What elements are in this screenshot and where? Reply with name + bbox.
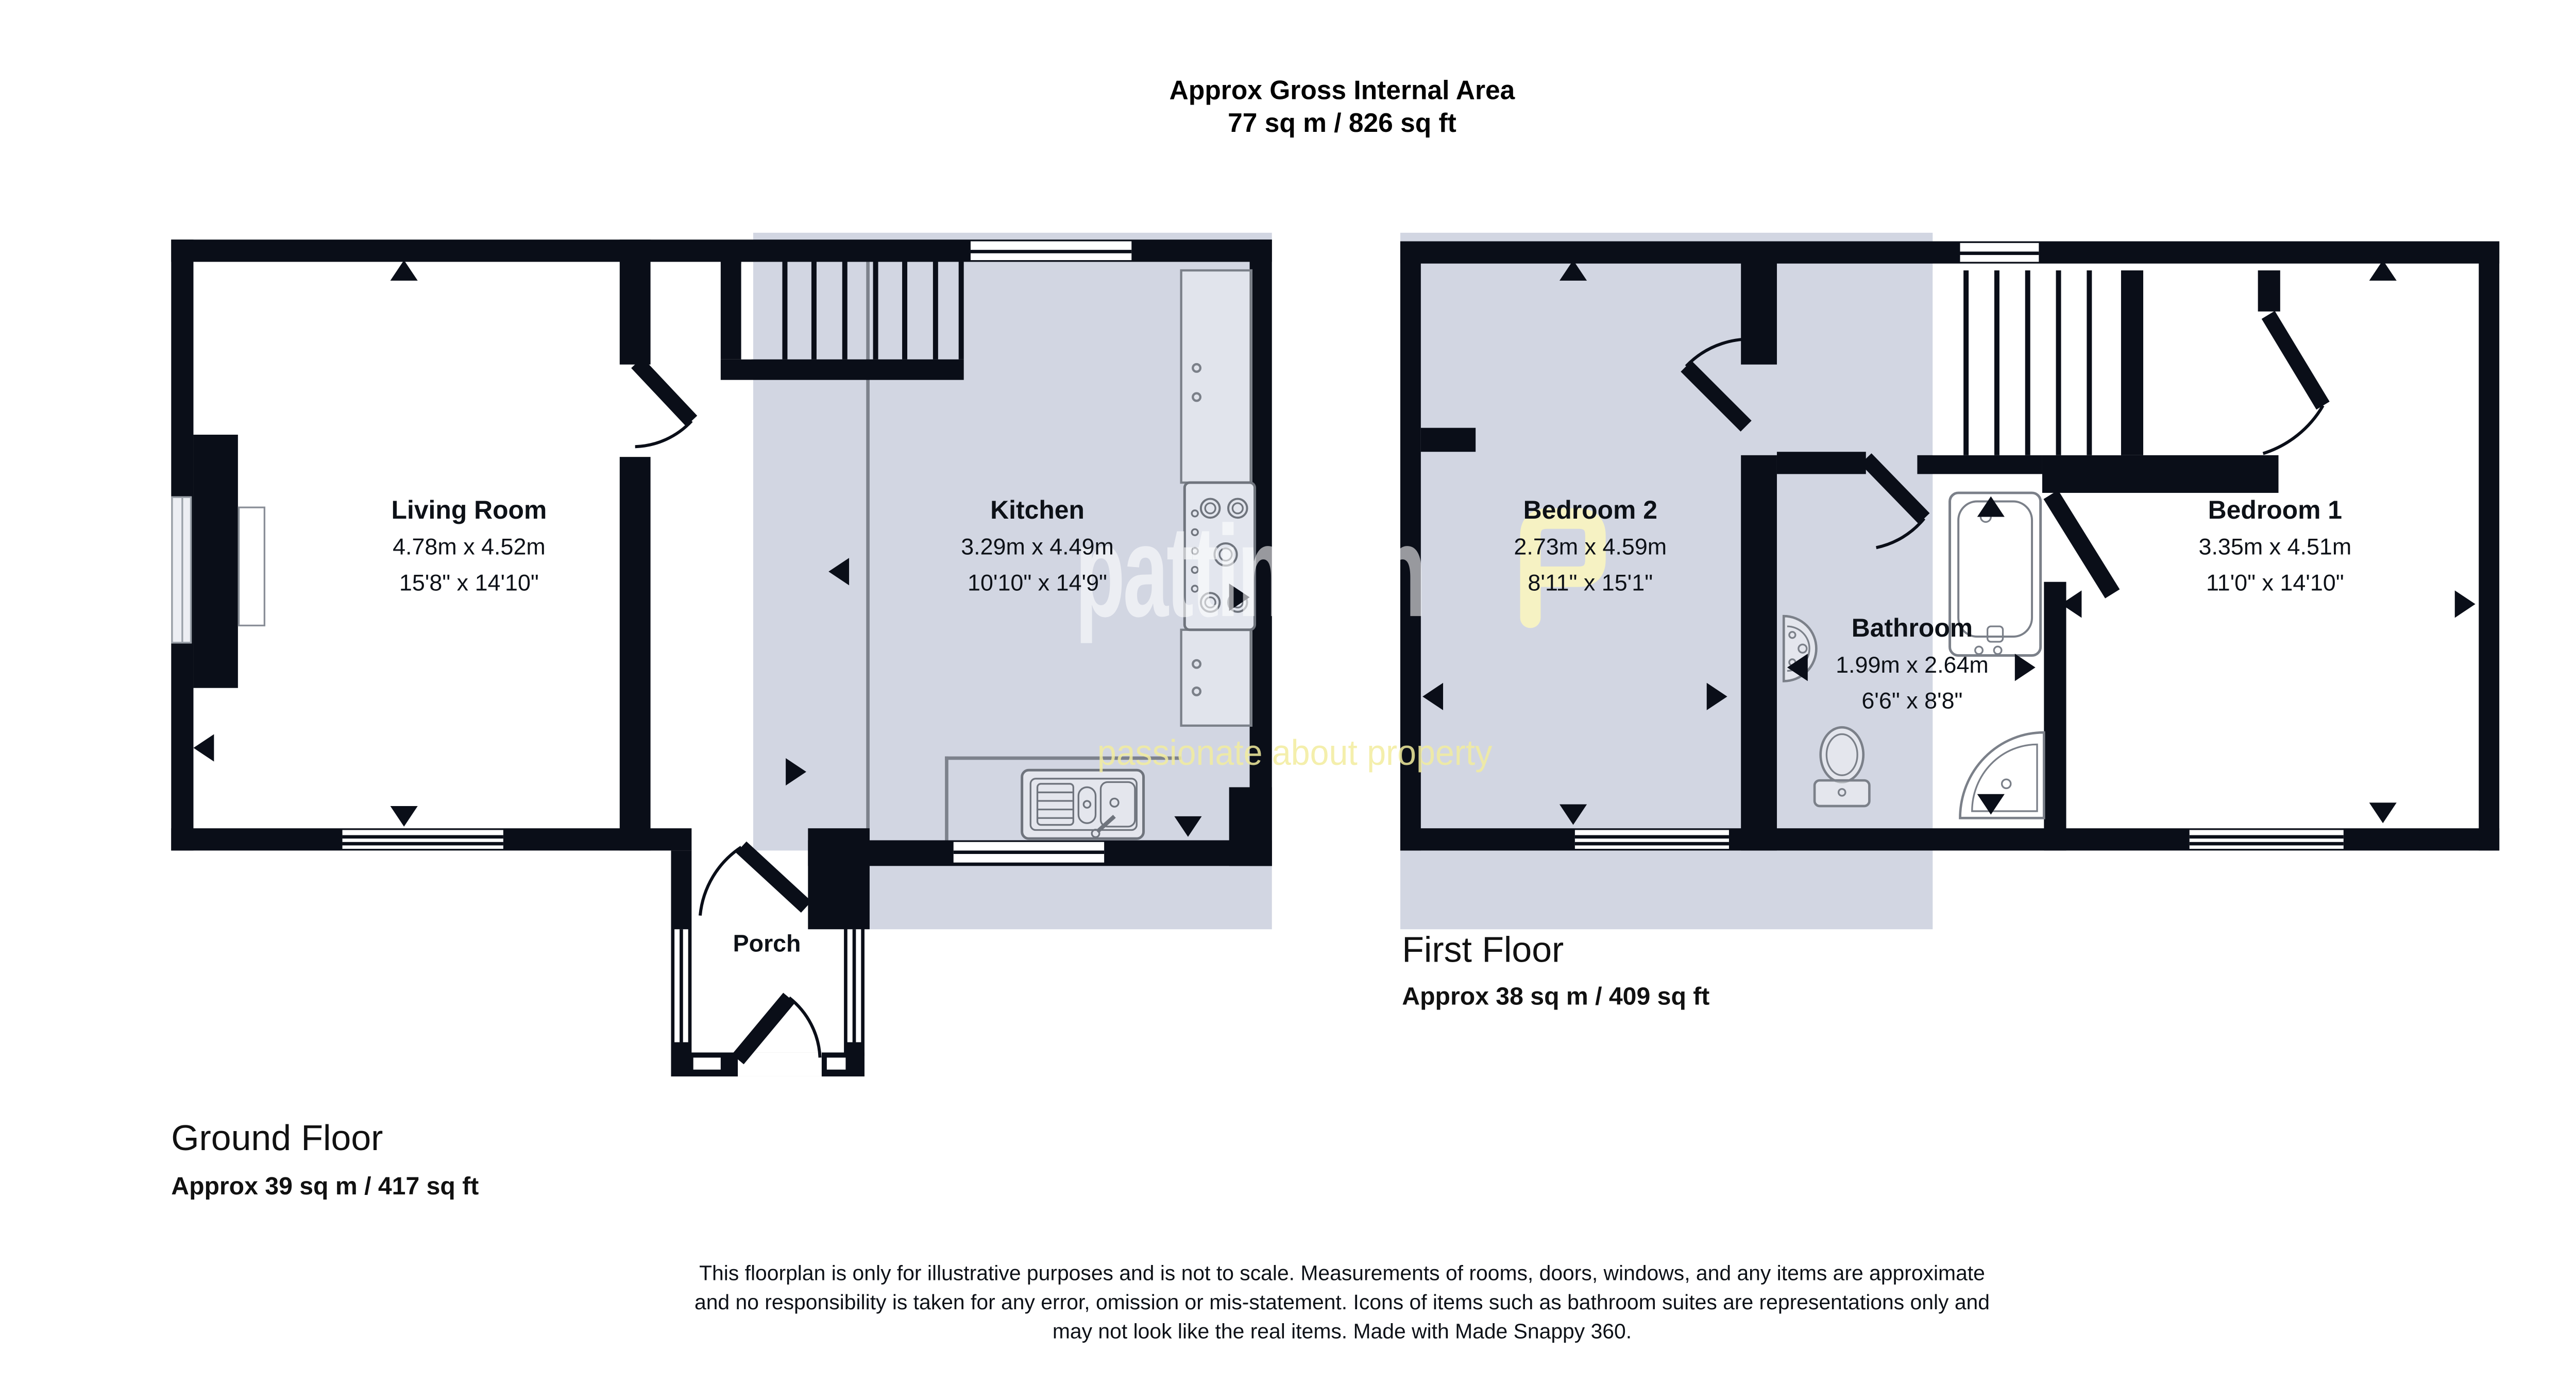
chimney-breast bbox=[1421, 428, 1476, 452]
camera-arrow-up-icon bbox=[1977, 497, 2005, 517]
porch-window bbox=[693, 1057, 721, 1069]
wall bbox=[1229, 787, 1272, 866]
chimney-breast bbox=[193, 435, 238, 688]
ground-floor-area: Approx 39 sq m / 417 sq ft bbox=[171, 1174, 479, 1201]
camera-arrow-down-icon bbox=[1174, 816, 1201, 837]
first-floor-title: First Floor bbox=[1402, 931, 1564, 972]
wall bbox=[2044, 582, 2066, 851]
room-label-bedroom-2: Bedroom 2 2.73m x 4.59m 8'11" x 15'1" bbox=[1514, 493, 1667, 601]
stairs-wall bbox=[721, 260, 741, 360]
camera-arrow-down-icon bbox=[2369, 802, 2397, 823]
door-jamb bbox=[2258, 270, 2280, 312]
wall bbox=[1777, 452, 1866, 474]
wall bbox=[1741, 455, 1777, 851]
window bbox=[1960, 243, 2039, 262]
porch-window bbox=[674, 929, 688, 1042]
floorplan-canvas: Approx Gross Internal Area 77 sq m / 826… bbox=[0, 0, 2576, 1386]
camera-arrow-left-icon bbox=[1422, 683, 1443, 710]
window bbox=[2190, 830, 2344, 849]
camera-arrow-left-icon bbox=[2061, 590, 2082, 618]
camera-arrow-up-icon bbox=[1560, 260, 1587, 281]
room-label-kitchen: Kitchen 3.29m x 4.49m 10'10" x 14'9" bbox=[961, 493, 1114, 601]
wall bbox=[1917, 455, 2042, 474]
stairs-wall bbox=[721, 360, 964, 380]
door-porch-front bbox=[738, 998, 820, 1059]
page-title: Approx Gross Internal Area 77 sq m / 826… bbox=[0, 75, 2576, 140]
camera-arrow-down-icon bbox=[1560, 805, 1587, 825]
porch-window bbox=[827, 1057, 846, 1069]
wall bbox=[2479, 242, 2499, 851]
camera-arrow-left-icon bbox=[1787, 654, 1808, 681]
camera-arrow-left-icon bbox=[193, 734, 214, 761]
room-label-porch: Porch bbox=[733, 926, 801, 962]
porch-door-opening bbox=[738, 1052, 822, 1076]
ground-floor-title: Ground Floor bbox=[171, 1119, 383, 1160]
door-living-room bbox=[635, 363, 692, 447]
window bbox=[1575, 830, 1729, 849]
wall bbox=[2042, 455, 2279, 493]
window bbox=[343, 830, 503, 849]
gross-internal-area-value: 77 sq m / 826 sq ft bbox=[0, 108, 2576, 140]
room-label-bathroom: Bathroom 1.99m x 2.64m 6'6" x 8'8" bbox=[1836, 611, 1989, 718]
camera-arrow-right-icon bbox=[1707, 683, 1727, 710]
disclaimer-text: This floorplan is only for illustrative … bbox=[0, 1260, 2576, 1348]
door-bedroom-1 bbox=[2263, 315, 2323, 453]
kitchen-counter-line bbox=[945, 757, 947, 841]
camera-arrow-up-icon bbox=[391, 260, 418, 281]
room-label-bedroom-1: Bedroom 1 3.35m x 4.51m 11'0" x 14'10" bbox=[2199, 493, 2352, 601]
wall bbox=[1741, 242, 1777, 365]
camera-arrow-down-icon bbox=[1977, 794, 2005, 815]
window bbox=[971, 242, 1131, 261]
stairs-landing-strip bbox=[741, 264, 752, 360]
door-porch-inner bbox=[700, 847, 806, 916]
camera-arrow-right-icon bbox=[786, 758, 806, 785]
room-label-living-room: Living Room 4.78m x 4.52m 15'8" x 14'10" bbox=[392, 493, 547, 601]
fireplace-icon bbox=[238, 507, 265, 627]
first-floor-area: Approx 38 sq m / 409 sq ft bbox=[1402, 984, 1709, 1012]
camera-arrow-left-icon bbox=[828, 558, 849, 585]
window bbox=[954, 842, 1104, 863]
camera-arrow-up-icon bbox=[2369, 260, 2397, 281]
camera-arrow-right-icon bbox=[2015, 654, 2036, 681]
camera-arrow-right-icon bbox=[2455, 590, 2476, 618]
porch-window bbox=[848, 929, 861, 1042]
window bbox=[171, 497, 192, 644]
kitchen-floor-line bbox=[866, 260, 869, 840]
watermark-brand: pattinson bbox=[1075, 498, 1425, 647]
stairs-wall bbox=[2121, 270, 2143, 455]
gross-internal-area-label: Approx Gross Internal Area bbox=[0, 75, 2576, 108]
camera-arrow-down-icon bbox=[391, 806, 418, 827]
staircase-first bbox=[1933, 270, 2121, 455]
angled-wall bbox=[2051, 494, 2113, 594]
wall bbox=[620, 239, 651, 365]
wall bbox=[620, 457, 651, 850]
watermark-tagline: passionate about property bbox=[1097, 734, 1493, 775]
